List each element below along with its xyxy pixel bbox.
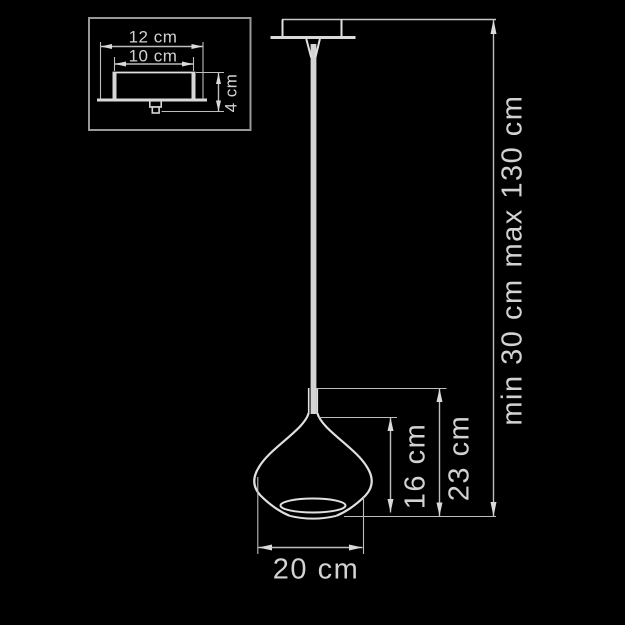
canopy-inner-width-label: 10 cm: [129, 48, 178, 65]
shade-diameter-label: 20 cm: [273, 556, 359, 585]
suspension-min-label: min 30 cm: [499, 278, 528, 425]
drawing-svg: [0, 0, 625, 625]
inset-canopy-drawing: [97, 73, 207, 114]
main-canopy: [271, 20, 497, 38]
inset-cord-grip-lower: [152, 107, 159, 113]
suspension-max-label: max 130 cm: [499, 95, 528, 268]
shade-opening-rim: [281, 499, 346, 513]
dimension-drawing-canvas: 12 cm 10 cm 4 cm 16 cm 23 cm min 30 cm m…: [0, 0, 625, 625]
dim-20cm: [258, 477, 364, 554]
canopy-outer-width-label: 12 cm: [129, 29, 178, 46]
inset-cord-grip-upper: [150, 101, 161, 107]
suspension-cord: [311, 44, 317, 414]
body-height-label: 23 cm: [446, 415, 475, 501]
shade-height-label: 16 cm: [402, 423, 431, 509]
shade-outline-left: [254, 413, 308, 516]
shade-bottom-edge: [290, 516, 337, 519]
canopy-height-label: 4 cm: [223, 74, 240, 113]
